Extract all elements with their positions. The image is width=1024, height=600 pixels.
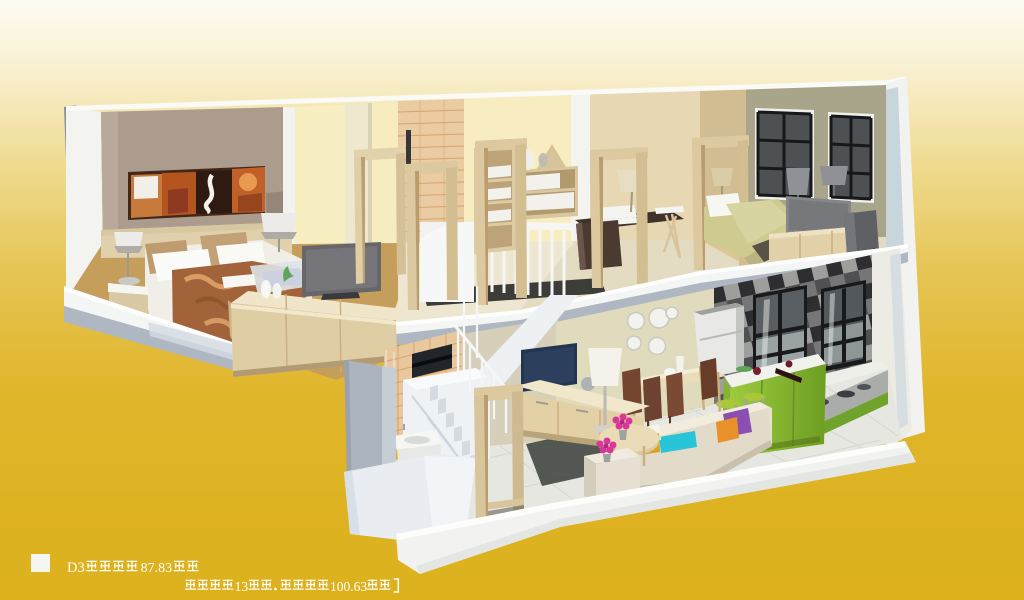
svg-text:100.63: 100.63	[330, 579, 367, 594]
svg-text:87.83: 87.83	[141, 561, 173, 576]
svg-text:D3: D3	[67, 560, 85, 576]
svg-text:13: 13	[235, 579, 249, 594]
